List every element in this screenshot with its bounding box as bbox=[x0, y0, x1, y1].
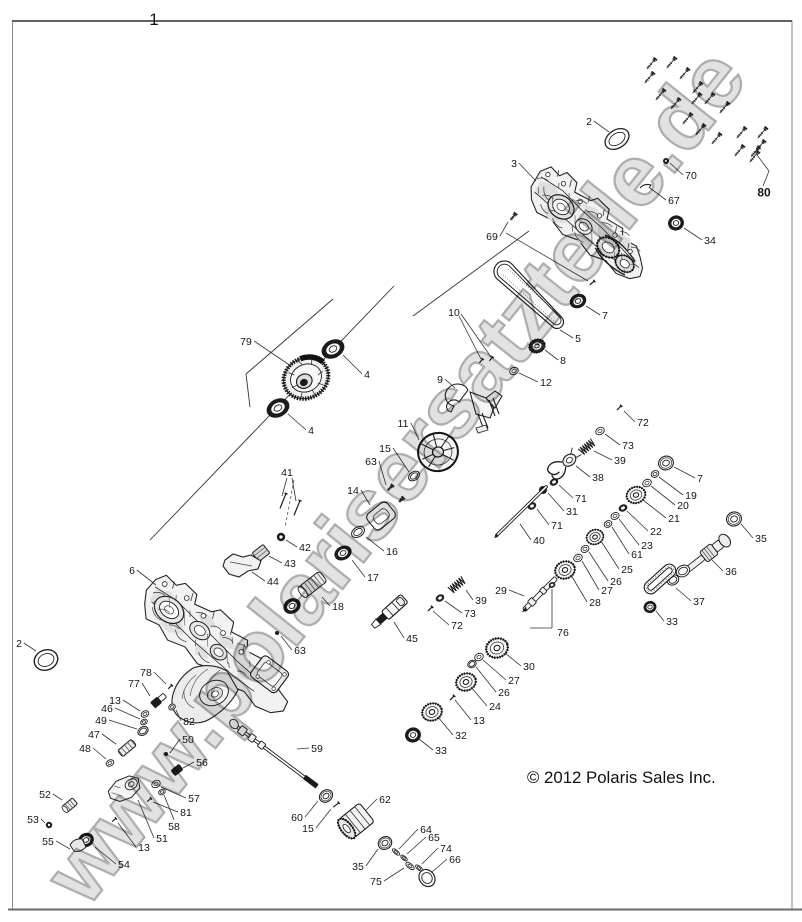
svg-text:70: 70 bbox=[685, 170, 697, 182]
svg-text:57: 57 bbox=[188, 793, 200, 805]
svg-text:13: 13 bbox=[138, 842, 150, 854]
svg-text:37: 37 bbox=[693, 596, 705, 608]
svg-text:12: 12 bbox=[540, 377, 552, 389]
svg-text:1: 1 bbox=[149, 10, 158, 29]
svg-text:16: 16 bbox=[386, 546, 398, 558]
svg-text:2: 2 bbox=[16, 638, 22, 650]
svg-text:40: 40 bbox=[533, 535, 545, 547]
svg-text:30: 30 bbox=[523, 661, 535, 673]
svg-text:66: 66 bbox=[449, 854, 461, 866]
svg-text:34: 34 bbox=[704, 235, 716, 247]
svg-text:23: 23 bbox=[641, 540, 653, 552]
svg-text:3: 3 bbox=[511, 158, 517, 170]
svg-text:73: 73 bbox=[464, 608, 476, 620]
svg-text:69: 69 bbox=[486, 231, 498, 243]
svg-text:15: 15 bbox=[302, 823, 314, 835]
svg-text:82: 82 bbox=[183, 716, 195, 728]
svg-text:62: 62 bbox=[379, 794, 391, 806]
svg-text:9: 9 bbox=[437, 374, 443, 386]
svg-text:46: 46 bbox=[101, 703, 113, 715]
svg-text:76: 76 bbox=[557, 627, 569, 639]
svg-text:10: 10 bbox=[448, 307, 460, 319]
svg-text:81: 81 bbox=[180, 807, 192, 819]
svg-text:55: 55 bbox=[42, 836, 54, 848]
svg-text:21: 21 bbox=[668, 513, 680, 525]
svg-text:45: 45 bbox=[406, 633, 418, 645]
svg-text:73: 73 bbox=[622, 440, 634, 452]
svg-text:4: 4 bbox=[308, 425, 314, 437]
svg-text:27: 27 bbox=[601, 585, 613, 597]
svg-text:42: 42 bbox=[299, 542, 311, 554]
svg-text:48: 48 bbox=[79, 743, 91, 755]
svg-text:35: 35 bbox=[352, 861, 364, 873]
svg-text:17: 17 bbox=[367, 572, 379, 584]
svg-text:63: 63 bbox=[294, 645, 306, 657]
svg-text:53: 53 bbox=[27, 814, 39, 826]
svg-text:43: 43 bbox=[284, 558, 296, 570]
svg-text:7: 7 bbox=[602, 310, 608, 322]
svg-text:54: 54 bbox=[118, 859, 130, 871]
svg-text:72: 72 bbox=[451, 620, 463, 632]
svg-text:39: 39 bbox=[475, 595, 487, 607]
svg-text:35: 35 bbox=[755, 533, 767, 545]
svg-text:8: 8 bbox=[560, 355, 566, 367]
svg-text:79: 79 bbox=[240, 336, 252, 348]
svg-text:80: 80 bbox=[757, 185, 771, 199]
svg-text:29: 29 bbox=[495, 585, 507, 597]
svg-text:75: 75 bbox=[370, 876, 382, 888]
svg-text:77: 77 bbox=[128, 678, 140, 690]
svg-text:33: 33 bbox=[666, 616, 678, 628]
svg-text:38: 38 bbox=[592, 472, 604, 484]
svg-text:71: 71 bbox=[575, 493, 587, 505]
svg-text:36: 36 bbox=[725, 566, 737, 578]
svg-text:4: 4 bbox=[364, 369, 370, 381]
svg-text:28: 28 bbox=[589, 597, 601, 609]
svg-text:71: 71 bbox=[551, 520, 563, 532]
svg-text:63: 63 bbox=[365, 456, 377, 468]
svg-text:5: 5 bbox=[575, 333, 581, 345]
svg-text:78: 78 bbox=[140, 667, 152, 679]
svg-text:67: 67 bbox=[668, 195, 680, 207]
svg-text:15: 15 bbox=[379, 443, 391, 455]
svg-text:47: 47 bbox=[88, 729, 100, 741]
svg-text:13: 13 bbox=[473, 715, 485, 727]
svg-text:14: 14 bbox=[347, 485, 359, 497]
svg-text:41: 41 bbox=[281, 467, 293, 479]
svg-text:25: 25 bbox=[621, 564, 633, 576]
svg-text:61: 61 bbox=[631, 549, 643, 561]
svg-text:59: 59 bbox=[311, 743, 323, 755]
svg-text:33: 33 bbox=[435, 745, 447, 757]
svg-text:20: 20 bbox=[677, 500, 689, 512]
svg-text:72: 72 bbox=[637, 417, 649, 429]
svg-text:50: 50 bbox=[182, 734, 194, 746]
svg-text:2: 2 bbox=[586, 116, 592, 128]
svg-text:39: 39 bbox=[614, 455, 626, 467]
svg-text:56: 56 bbox=[196, 757, 208, 769]
svg-text:65: 65 bbox=[428, 832, 440, 844]
svg-text:26: 26 bbox=[498, 687, 510, 699]
svg-text:24: 24 bbox=[489, 701, 501, 713]
svg-text:32: 32 bbox=[455, 730, 467, 742]
svg-text:44: 44 bbox=[267, 576, 279, 588]
svg-text:22: 22 bbox=[650, 526, 662, 538]
svg-text:58: 58 bbox=[168, 821, 180, 833]
svg-text:31: 31 bbox=[566, 506, 578, 518]
svg-text:6: 6 bbox=[129, 565, 135, 577]
svg-text:27: 27 bbox=[508, 675, 520, 687]
svg-text:11: 11 bbox=[398, 418, 409, 430]
svg-text:7: 7 bbox=[697, 473, 703, 485]
svg-text:18: 18 bbox=[332, 601, 344, 613]
svg-text:© 2012 Polaris Sales Inc.: © 2012 Polaris Sales Inc. bbox=[527, 768, 716, 787]
svg-text:49: 49 bbox=[95, 715, 107, 727]
svg-text:51: 51 bbox=[156, 833, 168, 845]
svg-text:52: 52 bbox=[39, 789, 51, 801]
